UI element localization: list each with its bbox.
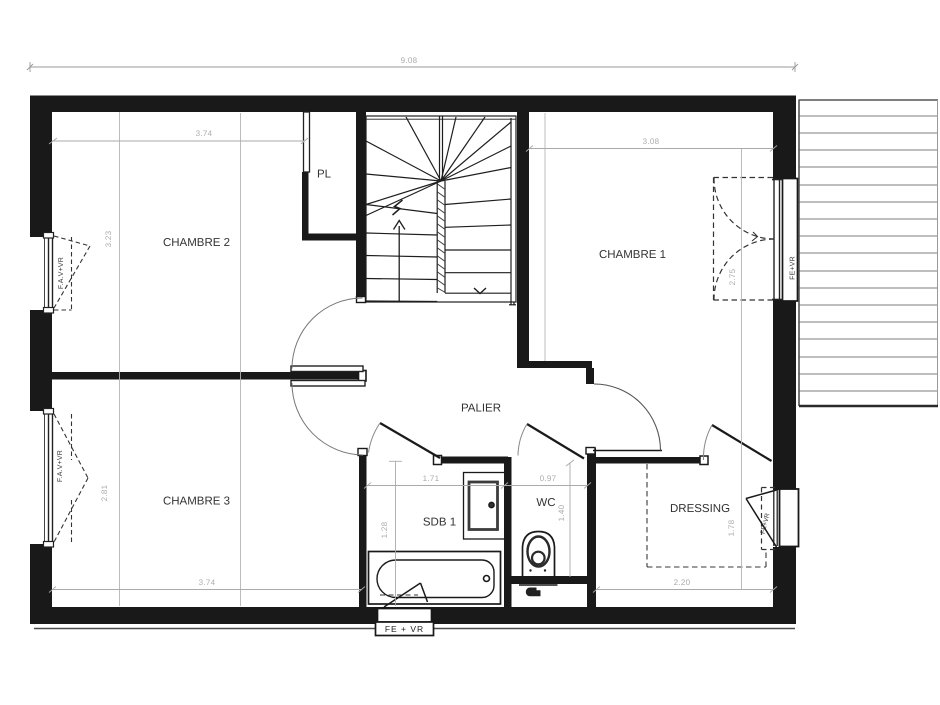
svg-text:F.A.V+VR: F.A.V+VR: [58, 257, 65, 289]
svg-text:CHAMBRE 3: CHAMBRE 3: [163, 496, 230, 508]
svg-text:3.74: 3.74: [199, 578, 216, 587]
svg-text:F.A.V+VR: F.A.V+VR: [57, 450, 64, 482]
svg-text:CHAMBRE 1: CHAMBRE 1: [599, 249, 666, 261]
svg-text:9.08: 9.08: [401, 56, 418, 65]
svg-text:PL: PL: [317, 169, 332, 181]
svg-text:DRESSING: DRESSING: [670, 503, 730, 515]
svg-text:FE + VR: FE + VR: [385, 624, 424, 634]
svg-text:CHAMBRE 2: CHAMBRE 2: [163, 237, 230, 249]
svg-text:1.78: 1.78: [727, 519, 736, 536]
svg-text:PALIER: PALIER: [461, 403, 501, 415]
svg-text:2.75: 2.75: [728, 268, 737, 285]
svg-text:1.71: 1.71: [423, 474, 440, 483]
svg-text:FE+VR: FE+VR: [790, 256, 797, 280]
svg-text:SDB 1: SDB 1: [423, 517, 456, 529]
svg-text:1.40: 1.40: [557, 504, 566, 521]
svg-text:WC: WC: [536, 497, 555, 509]
svg-text:3.74: 3.74: [196, 129, 213, 138]
svg-text:3.08: 3.08: [643, 137, 660, 146]
svg-text:2.20: 2.20: [674, 578, 691, 587]
svg-text:1.28: 1.28: [380, 521, 389, 538]
svg-text:2.81: 2.81: [100, 484, 109, 501]
svg-text:3.23: 3.23: [104, 230, 113, 247]
svg-text:0.97: 0.97: [540, 474, 557, 483]
